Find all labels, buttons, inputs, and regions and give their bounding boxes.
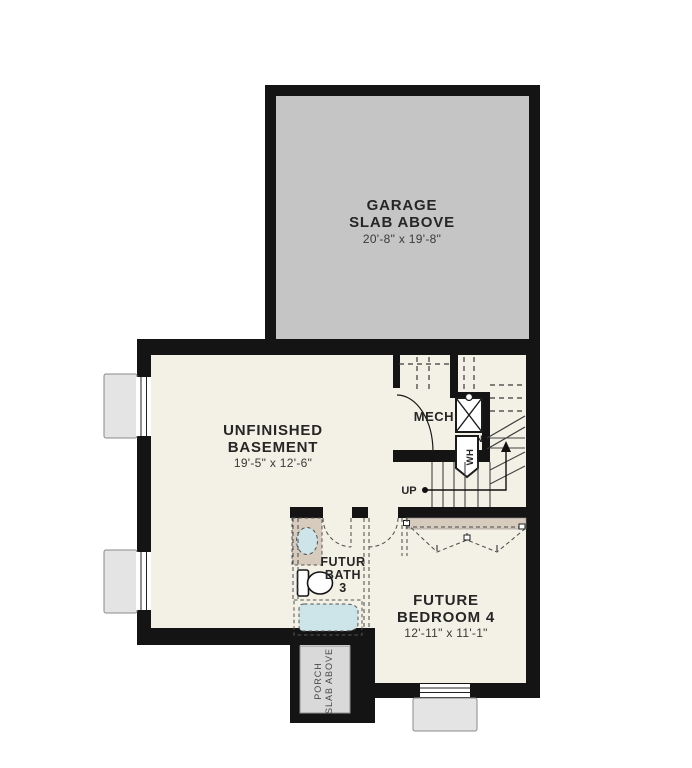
sink-symbol [297, 528, 318, 555]
wall-right [526, 339, 540, 698]
water-heater-label: WH [465, 449, 476, 466]
wall-top [137, 339, 540, 355]
bath-label-line3: 3 [339, 581, 347, 595]
window-left-lower [136, 552, 151, 610]
bath-label-line1: FUTUR [320, 555, 365, 569]
wall-stair-divider [482, 392, 490, 462]
window-bedroom-bottom [420, 684, 470, 697]
window-well-left-upper [104, 374, 137, 438]
bathtub-symbol [299, 604, 358, 631]
window-well-bottom [413, 698, 477, 731]
wall-door-stub-mid [352, 507, 368, 518]
basement-floor-plan: GARAGE SLAB ABOVE 20'-8" x 19'-8" PORCH … [0, 0, 692, 768]
garage-dims: 20'-8" x 19'-8" [363, 232, 441, 246]
basement-label-line2: BASEMENT [228, 439, 319, 456]
porch-wall-left [290, 628, 300, 723]
wall-closet-top [398, 507, 540, 518]
porch-label-line2: SLAB ABOVE [324, 648, 334, 714]
porch-label-line1: PORCH [313, 662, 323, 700]
wall-mech-left [393, 355, 400, 388]
window-left-upper [136, 377, 151, 436]
mech-label: MECH. [414, 409, 458, 424]
wall-mech-nook-vert [450, 355, 458, 398]
garage-label-line2: SLAB ABOVE [349, 214, 455, 231]
bath-label-line2: BATH [325, 568, 361, 582]
garage-label-line1: GARAGE [367, 197, 438, 214]
garage-area: GARAGE SLAB ABOVE 20'-8" x 19'-8" [265, 85, 540, 345]
unfinished-basement-label: UNFINISHED BASEMENT 19'-5" x 12'-6" [223, 422, 323, 470]
wall-door-stub-bath [290, 507, 323, 518]
up-label: UP [401, 485, 416, 497]
basement-dims: 19'-5" x 12'-6" [234, 456, 312, 470]
window-well-left-lower [104, 550, 137, 613]
bedroom-label-line1: FUTURE [413, 592, 479, 609]
floor-plan-page: GARAGE SLAB ABOVE 20'-8" x 19'-8" PORCH … [0, 0, 692, 768]
furnace-flue-icon [466, 394, 473, 401]
bedroom-label-line2: BEDROOM 4 [397, 609, 495, 626]
bedroom-dims: 12'-11" x 11'-1" [404, 626, 488, 640]
basement-label-line1: UNFINISHED [223, 422, 323, 439]
porch-wall-right [350, 628, 375, 723]
